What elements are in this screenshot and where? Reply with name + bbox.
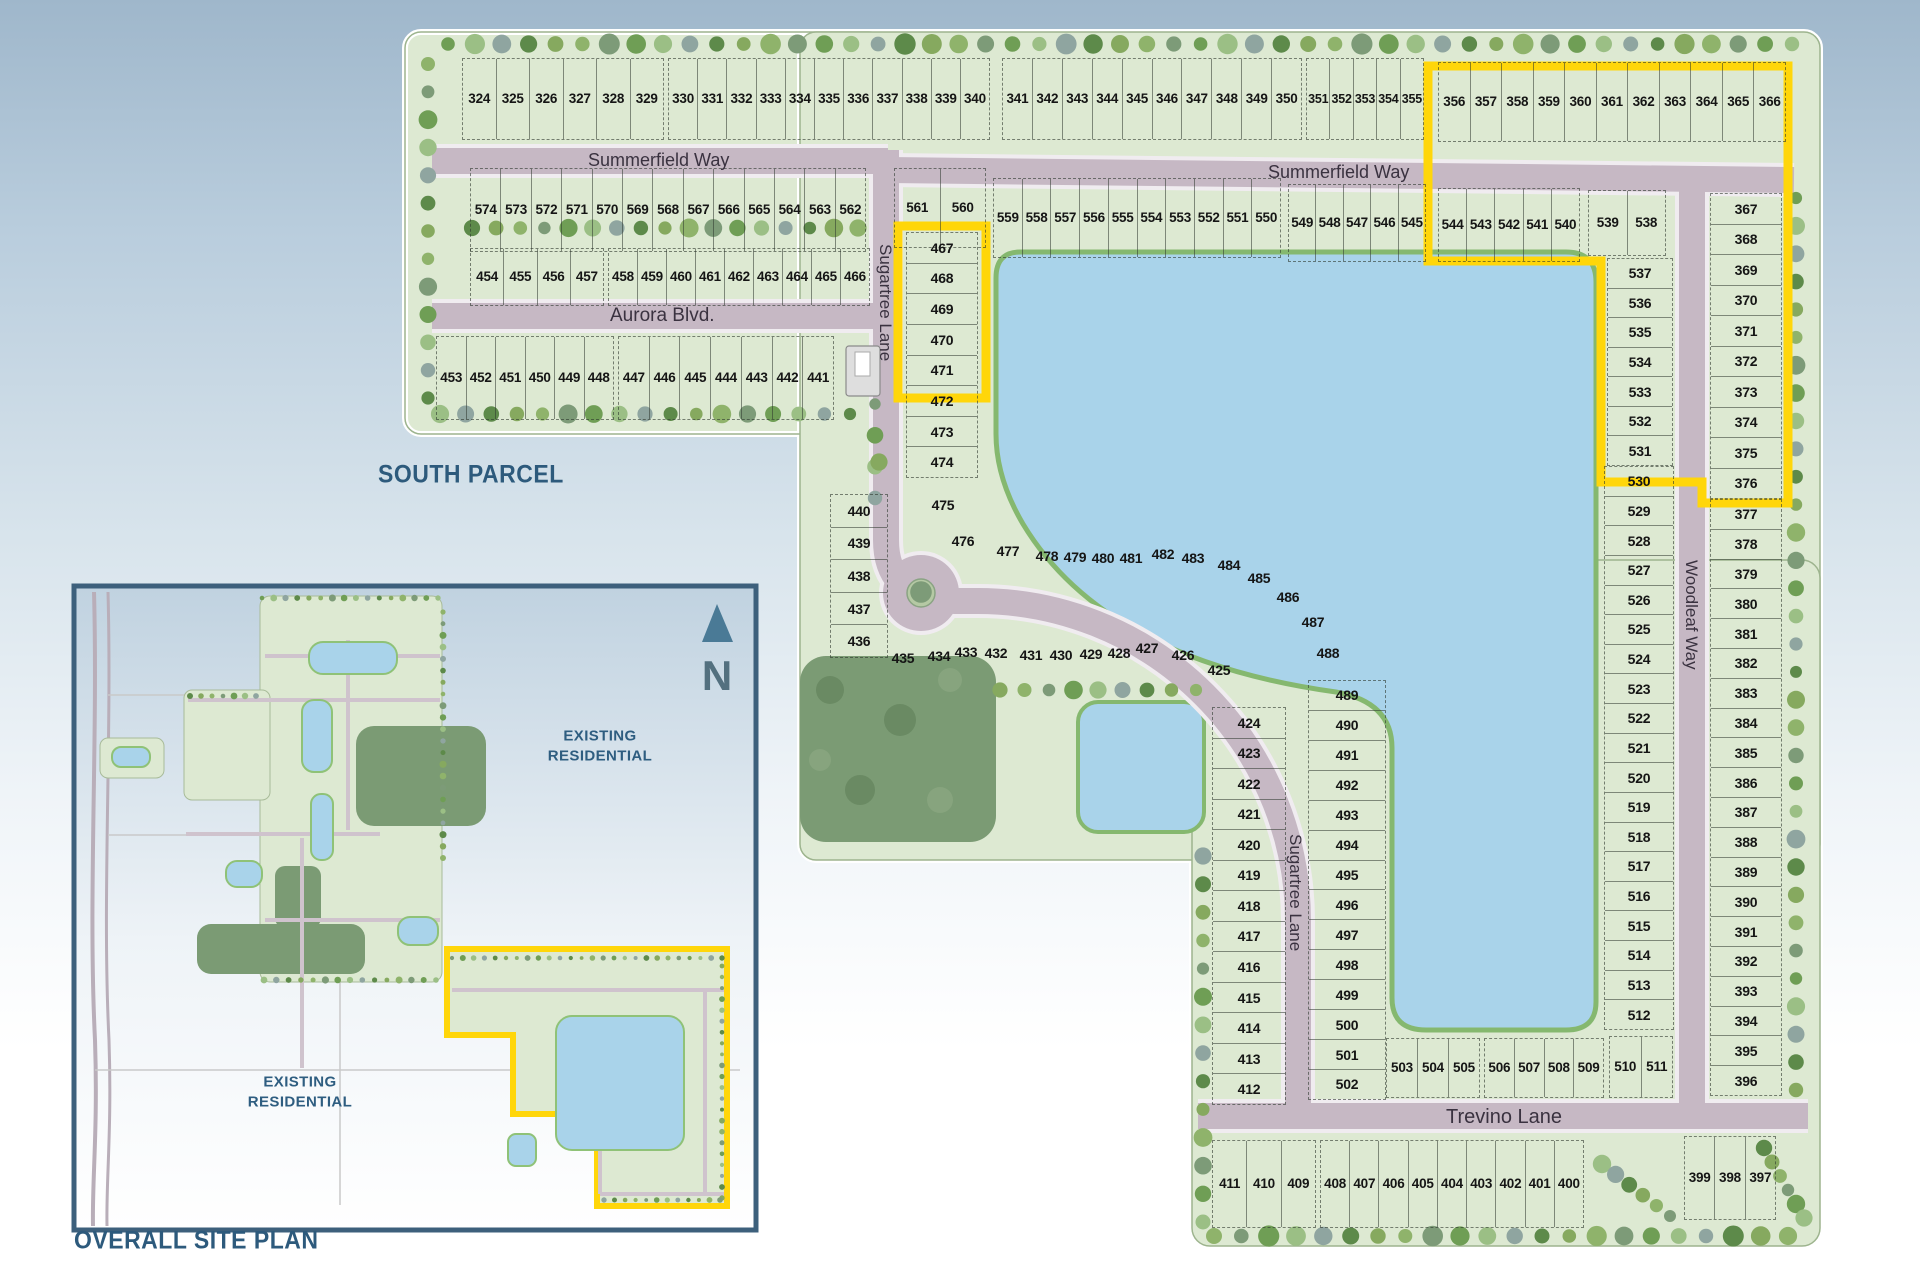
lot-538: 538 — [1627, 191, 1666, 255]
lot-548: 548 — [1315, 185, 1342, 261]
lot-334: 334 — [785, 59, 814, 139]
lot-433: 433 — [955, 644, 978, 660]
existing-residential-line2: RESIDENTIAL — [548, 746, 652, 766]
lot-464: 464 — [782, 249, 811, 305]
lot-461: 461 — [695, 249, 724, 305]
lot-367: 367 — [1711, 194, 1781, 224]
lot-474: 474 — [907, 446, 977, 477]
lot-350: 350 — [1271, 59, 1301, 139]
lot-398: 398 — [1714, 1137, 1744, 1219]
lot-339: 339 — [931, 59, 960, 139]
lot-strip-447-441: 447446445444443442441 — [618, 336, 834, 420]
lot-strip-539-538: 539538 — [1588, 190, 1666, 256]
lot-504: 504 — [1417, 1039, 1448, 1097]
lot-503: 503 — [1387, 1039, 1417, 1097]
lot-416: 416 — [1213, 951, 1285, 982]
lot-522: 522 — [1605, 703, 1673, 733]
lot-377: 377 — [1711, 500, 1781, 529]
lot-530: 530 — [1605, 467, 1673, 496]
lot-strip-574-562: 574573572571570569568567566565564563562 — [470, 168, 866, 252]
lot-strip-454-457: 454455456457 — [470, 248, 604, 306]
lot-393: 393 — [1711, 976, 1781, 1006]
lot-384: 384 — [1711, 708, 1781, 738]
south-parcel-title: SOUTH PARCEL — [378, 460, 564, 489]
lot-373: 373 — [1711, 376, 1781, 407]
lot-strip-424-412: 424423422421420419418417416415414413412 — [1212, 707, 1286, 1105]
lot-512: 512 — [1605, 999, 1673, 1029]
lot-432: 432 — [985, 645, 1008, 661]
lot-543: 543 — [1466, 189, 1494, 261]
lot-468: 468 — [907, 263, 977, 294]
lot-539: 539 — [1589, 191, 1627, 255]
lot-351: 351 — [1307, 59, 1329, 139]
lot-502: 502 — [1309, 1069, 1385, 1099]
lot-527: 527 — [1605, 555, 1673, 585]
lot-strip-399-397: 399398397 — [1684, 1136, 1776, 1220]
lot-488: 488 — [1317, 645, 1340, 661]
lot-513: 513 — [1605, 970, 1673, 1000]
lot-531: 531 — [1608, 435, 1672, 465]
street-label-woodleaf: Woodleaf Way — [1681, 560, 1701, 670]
lot-552: 552 — [1194, 179, 1223, 257]
lot-386: 386 — [1711, 767, 1781, 797]
lot-409: 409 — [1281, 1141, 1315, 1227]
lot-491: 491 — [1309, 740, 1385, 770]
lot-347: 347 — [1181, 59, 1211, 139]
lot-508: 508 — [1544, 1039, 1574, 1097]
lot-369: 369 — [1711, 254, 1781, 285]
lot-571: 571 — [561, 169, 591, 251]
lot-363: 363 — [1659, 63, 1691, 141]
lot-370: 370 — [1711, 285, 1781, 316]
lot-329: 329 — [630, 59, 664, 139]
lot-572: 572 — [531, 169, 561, 251]
lot-strip-510-511: 510511 — [1609, 1036, 1673, 1098]
lot-strip-408-400: 408407406405404403402401400 — [1320, 1140, 1584, 1228]
lot-467: 467 — [907, 233, 977, 263]
lot-381: 381 — [1711, 618, 1781, 648]
lot-501: 501 — [1309, 1039, 1385, 1069]
lot-344: 344 — [1092, 59, 1122, 139]
lot-337: 337 — [872, 59, 901, 139]
lot-415: 415 — [1213, 982, 1285, 1013]
lot-strip-544-540: 544543542541540 — [1438, 188, 1580, 262]
lot-429: 429 — [1080, 646, 1103, 662]
lot-445: 445 — [679, 337, 710, 419]
lot-549: 549 — [1289, 185, 1315, 261]
lot-346: 346 — [1152, 59, 1182, 139]
lot-535: 535 — [1608, 317, 1672, 347]
lot-342: 342 — [1032, 59, 1062, 139]
lot-341: 341 — [1003, 59, 1032, 139]
lot-567: 567 — [683, 169, 713, 251]
lot-397: 397 — [1745, 1137, 1775, 1219]
lot-strip-367-376: 367368369370371372373374375376 — [1710, 193, 1782, 499]
lot-431: 431 — [1020, 647, 1043, 663]
lot-564: 564 — [774, 169, 804, 251]
lot-500: 500 — [1309, 1009, 1385, 1039]
lot-378: 378 — [1711, 529, 1781, 559]
lot-strip-503-505: 503504505 — [1386, 1038, 1480, 1098]
lot-390: 390 — [1711, 886, 1781, 916]
lot-strip-351-355: 351352353354355 — [1306, 58, 1424, 140]
lot-332: 332 — [726, 59, 755, 139]
lot-439: 439 — [831, 527, 887, 560]
lot-330: 330 — [669, 59, 697, 139]
lot-392: 392 — [1711, 946, 1781, 976]
lot-446: 446 — [649, 337, 680, 419]
lot-430: 430 — [1050, 647, 1073, 663]
lot-523: 523 — [1605, 673, 1673, 703]
existing-residential-label-east: EXISTING RESIDENTIAL — [548, 727, 652, 766]
lot-462: 462 — [724, 249, 753, 305]
lot-453: 453 — [437, 337, 466, 419]
lot-425: 425 — [1208, 662, 1231, 678]
lot-360: 360 — [1564, 63, 1596, 141]
street-label-sugartree-south: Sugartree Lane — [1285, 834, 1305, 951]
lot-515: 515 — [1605, 910, 1673, 940]
lot-448: 448 — [584, 337, 614, 419]
lot-400: 400 — [1554, 1141, 1583, 1227]
lot-438: 438 — [831, 559, 887, 592]
lot-524: 524 — [1605, 644, 1673, 674]
lot-399: 399 — [1685, 1137, 1714, 1219]
lot-404: 404 — [1437, 1141, 1466, 1227]
lot-533: 533 — [1608, 376, 1672, 406]
lot-394: 394 — [1711, 1006, 1781, 1036]
lot-546: 546 — [1370, 185, 1397, 261]
lot-482: 482 — [1152, 546, 1175, 562]
lot-412: 412 — [1213, 1073, 1285, 1104]
lot-366: 366 — [1753, 63, 1785, 141]
lot-463: 463 — [753, 249, 782, 305]
lot-401: 401 — [1525, 1141, 1554, 1227]
lot-428: 428 — [1108, 645, 1131, 661]
lot-407: 407 — [1349, 1141, 1378, 1227]
lot-471: 471 — [907, 355, 977, 386]
lot-495: 495 — [1309, 860, 1385, 890]
lot-489: 489 — [1309, 681, 1385, 710]
lot-383: 383 — [1711, 678, 1781, 708]
lot-strip-530-512: 5305295285275265255245235225215205195185… — [1604, 466, 1674, 1030]
lot-573: 573 — [500, 169, 530, 251]
lot-368: 368 — [1711, 224, 1781, 255]
lot-537: 537 — [1608, 259, 1672, 288]
lot-547: 547 — [1343, 185, 1370, 261]
lot-strip-411-409: 411410409 — [1212, 1140, 1316, 1228]
street-label-aurora: Aurora Blvd. — [610, 305, 715, 327]
lot-528: 528 — [1605, 525, 1673, 555]
lot-574: 574 — [471, 169, 500, 251]
existing-residential-line1: EXISTING — [248, 1073, 352, 1093]
lot-563: 563 — [804, 169, 834, 251]
lot-511: 511 — [1641, 1037, 1673, 1097]
lot-494: 494 — [1309, 830, 1385, 860]
lot-492: 492 — [1309, 770, 1385, 800]
lot-328: 328 — [596, 59, 630, 139]
lot-521: 521 — [1605, 733, 1673, 763]
lot-324: 324 — [463, 59, 496, 139]
lot-395: 395 — [1711, 1035, 1781, 1065]
lot-389: 389 — [1711, 857, 1781, 887]
lot-520: 520 — [1605, 762, 1673, 792]
lot-424: 424 — [1213, 708, 1285, 738]
existing-residential-line2: RESIDENTIAL — [248, 1092, 352, 1112]
lot-540: 540 — [1551, 189, 1579, 261]
lot-514: 514 — [1605, 940, 1673, 970]
lot-505: 505 — [1448, 1039, 1479, 1097]
lot-359: 359 — [1533, 63, 1565, 141]
lot-405: 405 — [1408, 1141, 1437, 1227]
lot-340: 340 — [960, 59, 989, 139]
lot-426: 426 — [1172, 647, 1195, 663]
lot-456: 456 — [537, 249, 570, 305]
lot-497: 497 — [1309, 919, 1385, 949]
lot-375: 375 — [1711, 437, 1781, 468]
lot-strip-559-550: 559558557556555554553552551550 — [993, 178, 1281, 258]
lot-526: 526 — [1605, 585, 1673, 615]
lot-348: 348 — [1211, 59, 1241, 139]
lot-441: 441 — [802, 337, 833, 419]
lot-477: 477 — [997, 543, 1020, 559]
lot-569: 569 — [622, 169, 652, 251]
lot-558: 558 — [1022, 179, 1051, 257]
lot-466: 466 — [840, 249, 869, 305]
lot-345: 345 — [1122, 59, 1152, 139]
lot-562: 562 — [835, 169, 865, 251]
lot-355: 355 — [1400, 59, 1423, 139]
lot-357: 357 — [1470, 63, 1502, 141]
lot-550: 550 — [1251, 179, 1280, 257]
lot-519: 519 — [1605, 792, 1673, 822]
lot-479: 479 — [1064, 549, 1087, 565]
lot-419: 419 — [1213, 860, 1285, 891]
street-label-sugartree-north: Sugartree Lane — [875, 244, 895, 361]
lot-498: 498 — [1309, 949, 1385, 979]
lot-450: 450 — [525, 337, 555, 419]
lot-449: 449 — [554, 337, 584, 419]
street-label-summerfield-east: Summerfield Way — [1268, 162, 1409, 183]
lot-469: 469 — [907, 293, 977, 324]
lot-354: 354 — [1376, 59, 1399, 139]
lot-542: 542 — [1494, 189, 1522, 261]
lot-452: 452 — [466, 337, 496, 419]
lot-454: 454 — [471, 249, 503, 305]
lot-379: 379 — [1711, 559, 1781, 589]
lot-385: 385 — [1711, 737, 1781, 767]
lot-475: 475 — [932, 497, 955, 513]
lot-525: 525 — [1605, 614, 1673, 644]
lot-485: 485 — [1248, 570, 1271, 586]
lot-460: 460 — [666, 249, 695, 305]
lot-510: 510 — [1610, 1037, 1641, 1097]
lot-406: 406 — [1378, 1141, 1407, 1227]
lot-565: 565 — [744, 169, 774, 251]
lot-544: 544 — [1439, 189, 1466, 261]
lot-444: 444 — [710, 337, 741, 419]
lot-434: 434 — [928, 648, 951, 664]
lot-437: 437 — [831, 592, 887, 625]
lot-325: 325 — [496, 59, 530, 139]
lot-326: 326 — [529, 59, 563, 139]
lot-strip-356-366: 356357358359360361362363364365366 — [1438, 62, 1786, 142]
lot-418: 418 — [1213, 890, 1285, 921]
lot-487: 487 — [1302, 614, 1325, 630]
lot-358: 358 — [1501, 63, 1533, 141]
lot-476: 476 — [952, 533, 975, 549]
site-plan-page: N 32432532632732832933033133233333433533… — [0, 0, 1920, 1280]
lot-strip-537-531: 537536535534533532531 — [1607, 258, 1673, 466]
lot-435: 435 — [892, 650, 915, 666]
lot-440: 440 — [831, 495, 887, 527]
lot-361: 361 — [1596, 63, 1628, 141]
lot-343: 343 — [1062, 59, 1092, 139]
lot-478: 478 — [1036, 548, 1059, 564]
lot-strip-324-329: 324325326327328329 — [462, 58, 664, 140]
lot-423: 423 — [1213, 738, 1285, 769]
lot-388: 388 — [1711, 827, 1781, 857]
lot-517: 517 — [1605, 851, 1673, 881]
street-label-trevino: Trevino Lane — [1446, 1106, 1562, 1129]
lot-451: 451 — [495, 337, 525, 419]
lot-380: 380 — [1711, 588, 1781, 618]
lot-570: 570 — [592, 169, 622, 251]
lot-447: 447 — [619, 337, 649, 419]
lot-557: 557 — [1050, 179, 1079, 257]
lot-353: 353 — [1353, 59, 1376, 139]
lot-349: 349 — [1241, 59, 1271, 139]
lot-566: 566 — [713, 169, 743, 251]
lot-422: 422 — [1213, 768, 1285, 799]
lot-506: 506 — [1485, 1039, 1514, 1097]
lot-518: 518 — [1605, 822, 1673, 852]
existing-residential-line1: EXISTING — [548, 727, 652, 747]
lot-493: 493 — [1309, 800, 1385, 830]
lot-442: 442 — [772, 337, 803, 419]
lot-490: 490 — [1309, 710, 1385, 740]
lot-403: 403 — [1466, 1141, 1495, 1227]
lot-362: 362 — [1627, 63, 1659, 141]
lot-516: 516 — [1605, 881, 1673, 911]
lot-338: 338 — [902, 59, 931, 139]
lot-536: 536 — [1608, 288, 1672, 318]
lot-strip-489-502: 4894904914924934944954964974984995005015… — [1308, 680, 1386, 1100]
lot-443: 443 — [741, 337, 772, 419]
lot-411: 411 — [1213, 1141, 1246, 1227]
lot-396: 396 — [1711, 1065, 1781, 1095]
lot-331: 331 — [697, 59, 726, 139]
lot-481: 481 — [1120, 550, 1143, 566]
lot-strip-458-466: 458459460461462463464465466 — [608, 248, 870, 306]
lot-strip-440-436: 440439438437436 — [830, 494, 888, 658]
lot-465: 465 — [811, 249, 840, 305]
lot-327: 327 — [563, 59, 597, 139]
lot-382: 382 — [1711, 648, 1781, 678]
lot-420: 420 — [1213, 829, 1285, 860]
lot-strip-549-545: 549548547546545 — [1288, 184, 1426, 262]
lot-364: 364 — [1690, 63, 1722, 141]
lot-455: 455 — [503, 249, 536, 305]
lot-532: 532 — [1608, 406, 1672, 436]
lot-391: 391 — [1711, 916, 1781, 946]
lot-427: 427 — [1136, 640, 1159, 656]
lot-529: 529 — [1605, 496, 1673, 526]
lot-365: 365 — [1722, 63, 1754, 141]
lot-559: 559 — [994, 179, 1022, 257]
lot-336: 336 — [843, 59, 872, 139]
lot-555: 555 — [1108, 179, 1137, 257]
lot-371: 371 — [1711, 315, 1781, 346]
street-label-summerfield-west: Summerfield Way — [588, 150, 729, 171]
lot-414: 414 — [1213, 1012, 1285, 1043]
lot-402: 402 — [1495, 1141, 1524, 1227]
lot-356: 356 — [1439, 63, 1470, 141]
lot-436: 436 — [831, 624, 887, 657]
lot-417: 417 — [1213, 921, 1285, 952]
lot-strip-467-474: 467468469470471472473474 — [906, 232, 978, 478]
lot-554: 554 — [1137, 179, 1166, 257]
lot-496: 496 — [1309, 889, 1385, 919]
lot-473: 473 — [907, 416, 977, 447]
lot-strip-330-340: 330331332333334335336337338339340 — [668, 58, 990, 140]
lot-strip-377-396: 3773783793803813823833843853863873883893… — [1710, 499, 1782, 1096]
lot-470: 470 — [907, 324, 977, 355]
lot-408: 408 — [1321, 1141, 1349, 1227]
lot-387: 387 — [1711, 797, 1781, 827]
lot-472: 472 — [907, 385, 977, 416]
overall-site-plan-title: OVERALL SITE PLAN — [74, 1226, 319, 1255]
lot-484: 484 — [1218, 557, 1241, 573]
lot-458: 458 — [609, 249, 637, 305]
existing-residential-label-south: EXISTING RESIDENTIAL — [248, 1073, 352, 1112]
lot-333: 333 — [756, 59, 785, 139]
lot-457: 457 — [570, 249, 603, 305]
lot-374: 374 — [1711, 407, 1781, 438]
lot-strip-453-448: 453452451450449448 — [436, 336, 614, 420]
lot-483: 483 — [1182, 550, 1205, 566]
lot-352: 352 — [1329, 59, 1352, 139]
lot-480: 480 — [1092, 550, 1115, 566]
lot-541: 541 — [1523, 189, 1551, 261]
lot-372: 372 — [1711, 346, 1781, 377]
lot-545: 545 — [1398, 185, 1425, 261]
lot-551: 551 — [1223, 179, 1252, 257]
lot-534: 534 — [1608, 347, 1672, 377]
lot-421: 421 — [1213, 799, 1285, 830]
lot-486: 486 — [1277, 589, 1300, 605]
lot-335: 335 — [814, 59, 843, 139]
lot-556: 556 — [1079, 179, 1108, 257]
lot-413: 413 — [1213, 1043, 1285, 1074]
lot-553: 553 — [1165, 179, 1194, 257]
lot-376: 376 — [1711, 468, 1781, 499]
lot-509: 509 — [1573, 1039, 1603, 1097]
lot-strip-506-509: 506507508509 — [1484, 1038, 1604, 1098]
lot-459: 459 — [637, 249, 666, 305]
lot-568: 568 — [652, 169, 682, 251]
lot-strip-341-350: 341342343344345346347348349350 — [1002, 58, 1302, 140]
lot-499: 499 — [1309, 979, 1385, 1009]
lot-507: 507 — [1514, 1039, 1544, 1097]
lot-410: 410 — [1246, 1141, 1280, 1227]
